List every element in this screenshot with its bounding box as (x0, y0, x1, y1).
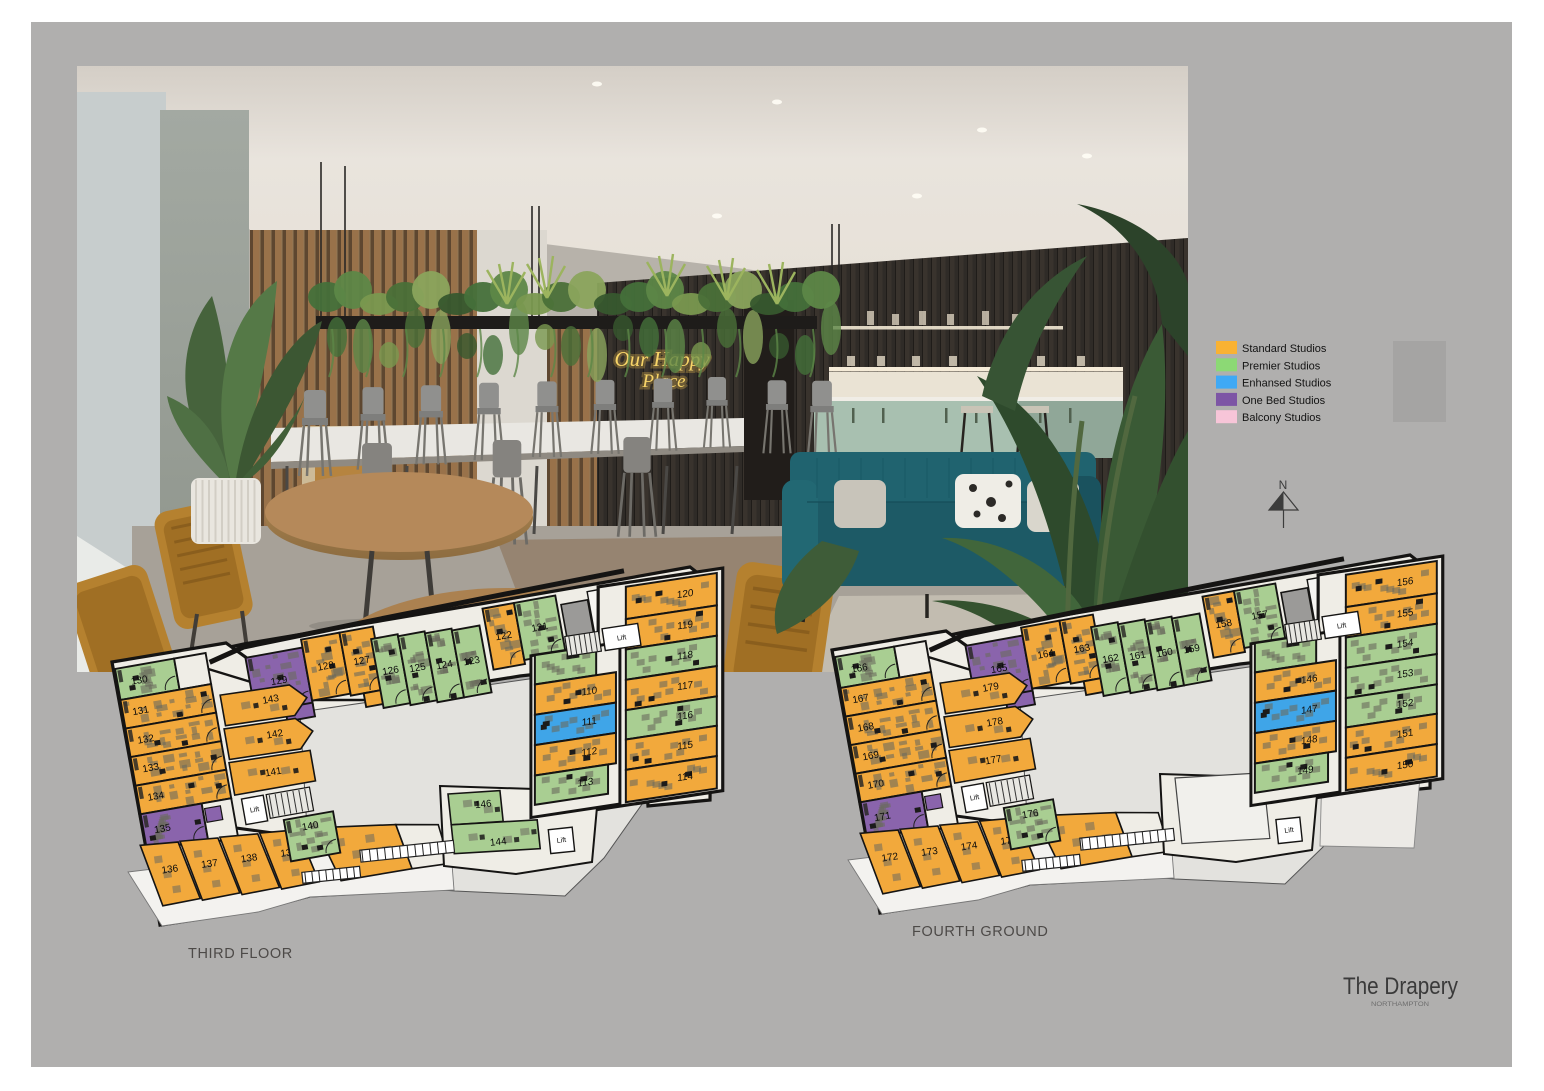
svg-text:One Bed Studios: One Bed Studios (1242, 395, 1326, 407)
svg-text:111: 111 (582, 716, 597, 729)
svg-text:Enhansed Studios: Enhansed Studios (1242, 378, 1332, 390)
svg-text:THIRD FLOOR: THIRD FLOOR (188, 946, 293, 962)
svg-text:144: 144 (489, 836, 507, 849)
svg-text:Lift: Lift (617, 634, 627, 642)
svg-text:Balcony Studios: Balcony Studios (1242, 412, 1321, 424)
svg-text:NORTHAMPTON: NORTHAMPTON (1371, 1001, 1429, 1008)
svg-text:FOURTH GROUND: FOURTH GROUND (912, 924, 1048, 940)
svg-text:Lift: Lift (557, 837, 567, 845)
svg-text:N: N (1279, 478, 1288, 492)
svg-text:Standard Studios: Standard Studios (1242, 343, 1327, 355)
svg-text:Premier Studios: Premier Studios (1242, 360, 1321, 372)
svg-text:The Drapery: The Drapery (1343, 973, 1459, 1000)
svg-text:Lift: Lift (1284, 827, 1294, 835)
svg-text:Lift: Lift (1337, 622, 1347, 630)
svg-text:146: 146 (474, 798, 492, 811)
